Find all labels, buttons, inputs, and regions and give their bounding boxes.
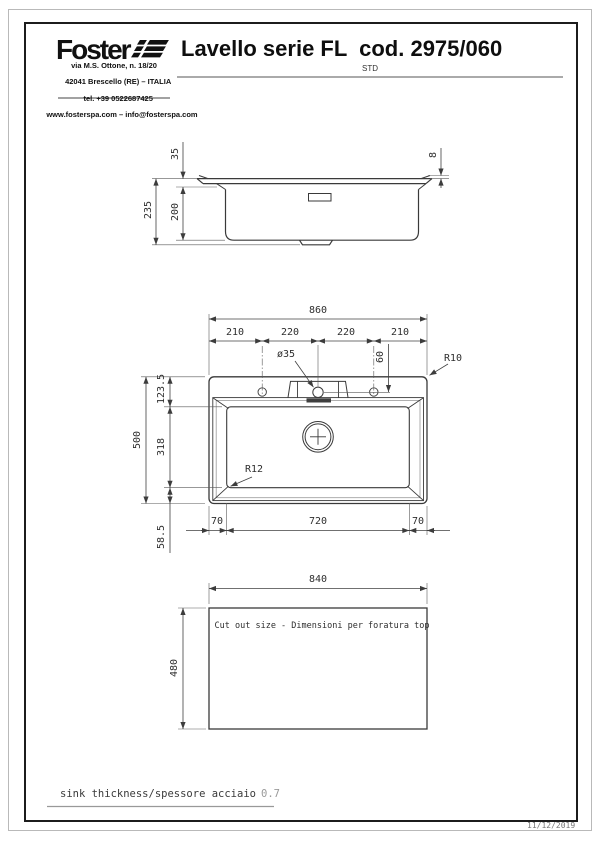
datasheet-page: Foster via M.S. Ottone, n. 18/20 42041 B…	[0, 0, 600, 849]
dim-70-left: 70	[211, 517, 223, 527]
dim-235: 235	[144, 201, 154, 219]
drain-plan	[303, 422, 334, 453]
drain-side	[300, 240, 333, 245]
dim-480: 480	[170, 659, 180, 677]
company-address: via M.S. Ottone, n. 18/20 42041 Brescell…	[38, 62, 190, 119]
dim-8: 8	[429, 152, 439, 158]
drawing-date: 11/12/2019	[527, 821, 575, 830]
dim-210-left: 210	[226, 328, 244, 338]
dim-r12: R12	[245, 465, 263, 475]
dim-r10: R10	[444, 354, 462, 364]
thickness-note-value: 0.7	[261, 788, 280, 800]
overflow-slot	[307, 398, 332, 402]
address-line: via M.S. Ottone, n. 18/20	[71, 61, 157, 70]
technical-drawing	[0, 0, 600, 849]
address-line: www.fosterspa.com – info@fosterspa.com	[46, 110, 197, 119]
overflow-hole-side	[309, 194, 332, 202]
dim-500: 500	[133, 431, 143, 449]
dim-60: 60	[376, 351, 386, 363]
dim-hole-diameter: ø35	[277, 350, 295, 360]
cutout-view-dimensions	[178, 583, 427, 729]
thickness-note-label: sink thickness/spessore acciaio	[60, 788, 256, 800]
dim-35: 35	[171, 148, 181, 160]
dim-860: 860	[309, 306, 327, 316]
dim-58-5: 58.5	[157, 525, 167, 549]
dim-720: 720	[309, 517, 327, 527]
cutout-caption: Cut out size - Dimensioni per foratura t…	[215, 621, 430, 631]
dim-220-left: 220	[281, 328, 299, 338]
dim-220-right: 220	[337, 328, 355, 338]
dim-318: 318	[157, 438, 167, 456]
page-subtitle: STD	[340, 64, 400, 73]
side-view-dimensions	[152, 142, 449, 245]
dim-70-right: 70	[412, 517, 424, 527]
side-view	[197, 176, 432, 245]
plan-view-dimensions	[141, 314, 450, 553]
plan-view	[209, 377, 427, 504]
foster-logo-icon	[131, 40, 169, 57]
bowl-opening	[213, 398, 424, 501]
bowl-bottom	[227, 407, 410, 488]
page-title: Lavello serie FL cod. 2975/060	[181, 36, 502, 62]
dim-840: 840	[309, 575, 327, 585]
dim-123-5: 123.5	[157, 374, 167, 404]
address-line: 42041 Brescello (RE) – ITALIA	[65, 77, 171, 86]
dim-200: 200	[171, 203, 181, 221]
tap-hole-center	[313, 387, 323, 397]
dim-210-right: 210	[391, 328, 409, 338]
address-line: tel. +39 0522687425	[83, 94, 152, 103]
